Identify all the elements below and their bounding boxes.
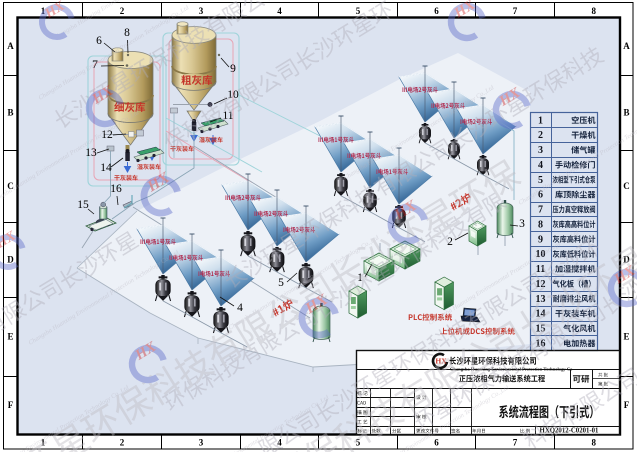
svg-text:8: 8: [592, 438, 597, 448]
svg-text:3: 3: [199, 6, 204, 16]
svg-text:C: C: [623, 181, 630, 191]
svg-text:9: 9: [230, 63, 236, 75]
svg-text:7: 7: [538, 205, 543, 216]
svg-text:5: 5: [538, 175, 543, 186]
svg-text:5: 5: [356, 6, 361, 16]
svg-text:5: 5: [278, 277, 284, 289]
svg-text:6: 6: [434, 438, 439, 448]
svg-text:4: 4: [538, 160, 543, 171]
svg-text:14: 14: [100, 162, 112, 174]
svg-text:7: 7: [513, 438, 518, 448]
svg-text:9: 9: [538, 234, 543, 245]
svg-text:E: E: [623, 332, 629, 342]
svg-text:2: 2: [120, 438, 125, 448]
svg-text:F: F: [8, 400, 14, 410]
svg-text:7: 7: [513, 6, 518, 16]
svg-text:13: 13: [85, 147, 97, 159]
svg-text:8: 8: [124, 27, 130, 39]
svg-text:A: A: [7, 41, 14, 51]
svg-text:3: 3: [519, 218, 525, 230]
svg-text:6: 6: [434, 6, 439, 16]
svg-text:8: 8: [592, 6, 597, 16]
svg-text:2: 2: [538, 130, 543, 141]
svg-text:3: 3: [538, 145, 543, 156]
svg-text:B: B: [623, 108, 629, 118]
svg-text:2: 2: [120, 6, 125, 16]
svg-text:15: 15: [77, 199, 89, 211]
svg-text:4: 4: [277, 6, 282, 16]
svg-text:A: A: [623, 41, 630, 51]
svg-text:3: 3: [199, 438, 204, 448]
svg-text:16: 16: [110, 183, 122, 195]
svg-text:1: 1: [538, 115, 543, 126]
svg-text:8: 8: [538, 219, 543, 230]
svg-text:4: 4: [237, 302, 243, 314]
svg-text:F: F: [624, 400, 630, 410]
svg-text:B: B: [7, 108, 13, 118]
svg-text:E: E: [7, 332, 13, 342]
svg-text:6: 6: [96, 35, 102, 47]
